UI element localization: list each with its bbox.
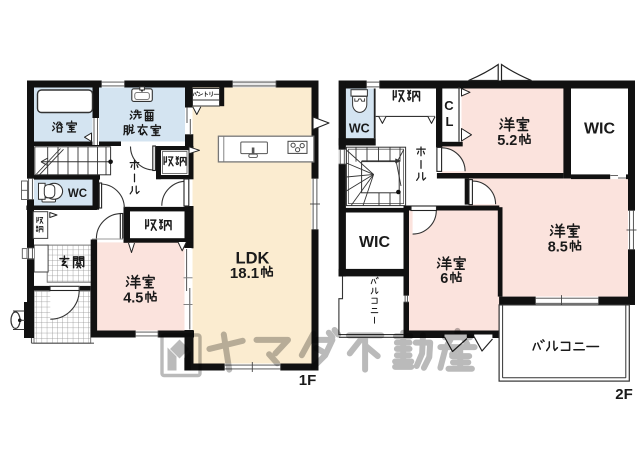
svg-text:L: L: [446, 114, 454, 129]
svg-text:WIC: WIC: [359, 234, 391, 251]
svg-text:18.1: 18.1: [230, 265, 259, 282]
svg-text:2F: 2F: [615, 386, 633, 403]
svg-text:WC: WC: [68, 188, 87, 200]
svg-text:4.5: 4.5: [123, 291, 143, 307]
svg-text:WIC: WIC: [584, 121, 616, 138]
svg-text:5.2: 5.2: [497, 133, 517, 149]
svg-text:1F: 1F: [299, 372, 317, 389]
svg-text:8.5: 8.5: [548, 240, 568, 256]
svg-text:WC: WC: [349, 122, 370, 136]
svg-text:C: C: [444, 98, 454, 113]
svg-text:6: 6: [440, 271, 448, 287]
